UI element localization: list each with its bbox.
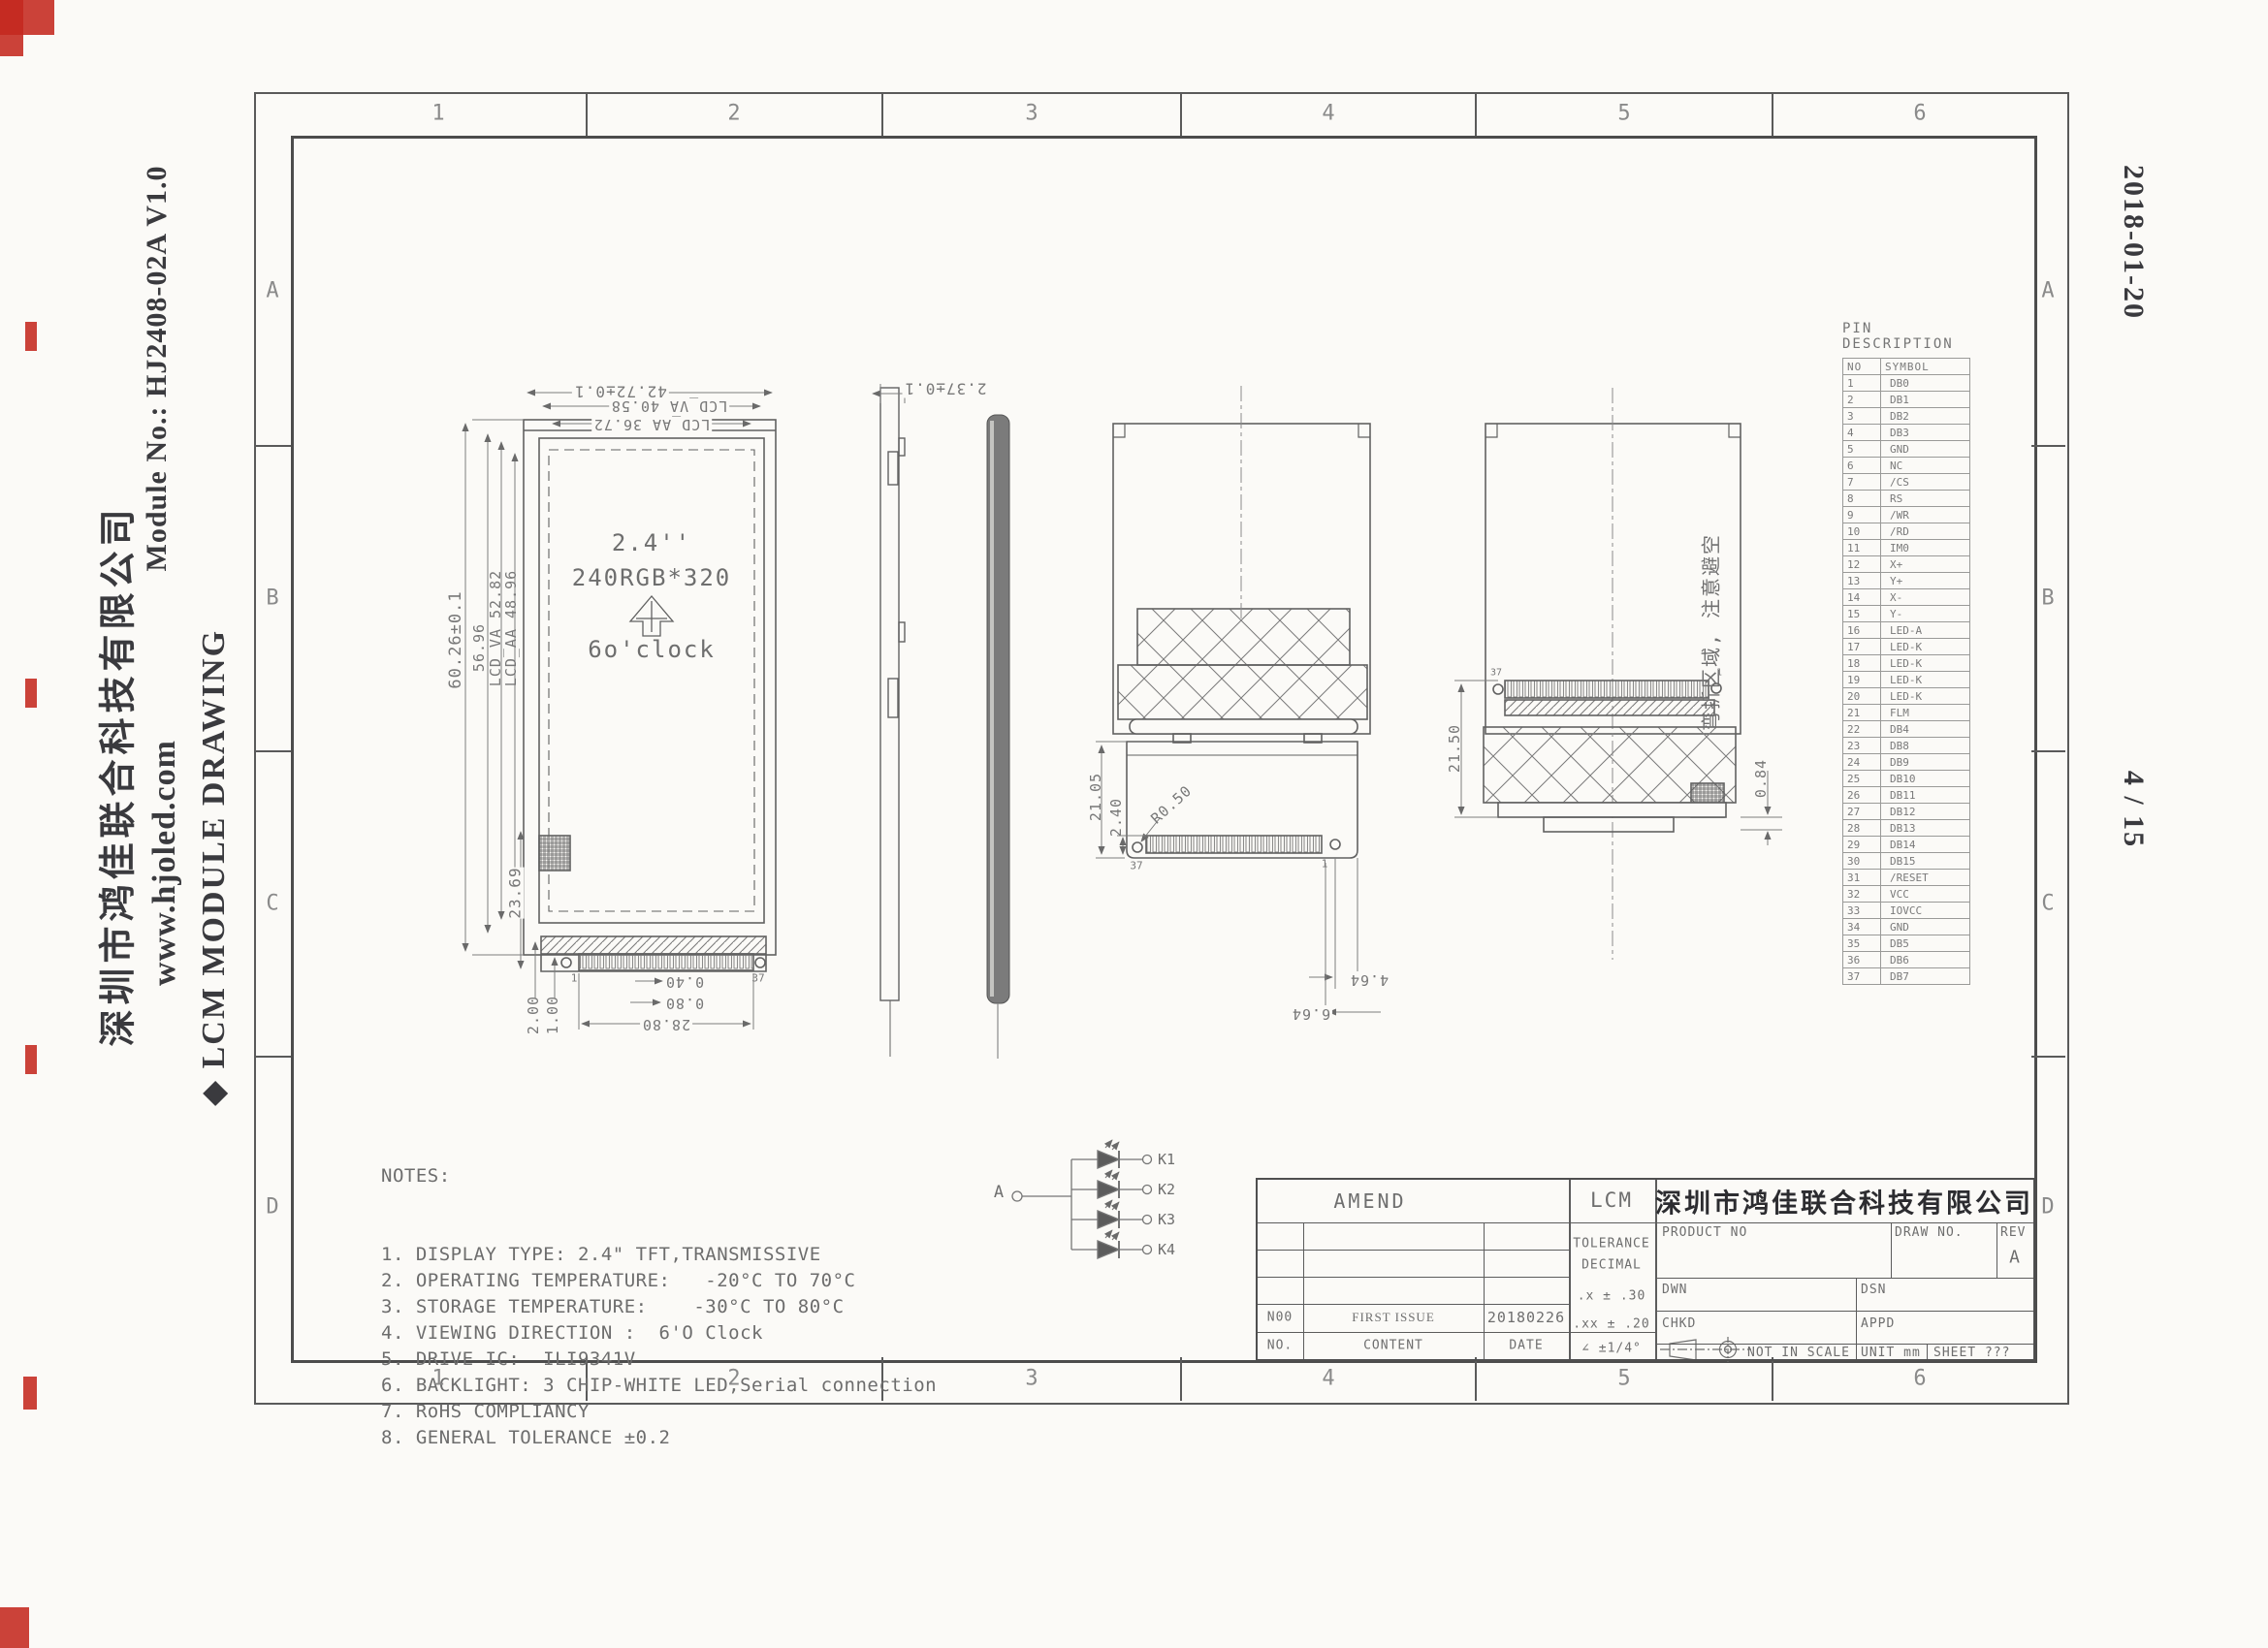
drawing-page: 深圳市鸿佳联合科技有限公司 www.hjoled.com ◆ LCM MODUL… [0,0,2268,1648]
led-cathode-label: K2 [1158,1181,1175,1198]
note-item: 7. RoHS COMPLIANCY [381,1399,1021,1425]
pin-row: 3DB2 [1843,408,1970,425]
grid-ref-label: 1 [431,1367,444,1391]
viewing-direction-arrow-icon [630,596,673,636]
pin-row: 29DB14 [1843,837,1970,853]
notes-block: NOTES: 1. DISPLAY TYPE: 2.4" TFT,TRANSMI… [381,1111,1021,1504]
pin-table-rows: 1DB02DB13DB24DB35GND6NC7/CS8RS9/WR10/RD1… [1843,375,1970,985]
scale-note: NOT IN SCALE [1747,1346,1850,1360]
pin-row: 15Y- [1843,606,1970,622]
pin-row: 32VCC [1843,886,1970,903]
grid-ref-label: 2 [727,102,740,126]
led-circuit-linework [1012,1140,1152,1258]
pin-table-header: NOSYMBOL [1843,359,1970,375]
tolerance-x: .x ± .30 [1578,1289,1646,1304]
notes-list: 1. DISPLAY TYPE: 2.4" TFT,TRANSMISSIVE2.… [381,1242,1021,1451]
dim-2-40: 2.40 [1107,798,1125,837]
dim-0-80: 0.80 [663,995,706,1012]
notes-title: NOTES: [381,1163,1021,1189]
led-cathode-label: K3 [1158,1211,1175,1228]
note-item: 3. STORAGE TEMPERATURE: -30°C TO 80°C [381,1294,1021,1320]
pin-row: 26DB11 [1843,787,1970,804]
dim-height-total: 60.26±0.1 [446,590,465,688]
dim-tail-length: 23.69 [506,867,525,918]
led-cathode-label: K4 [1158,1241,1175,1258]
pin-row: 22DB4 [1843,721,1970,738]
pin-number-label: 1 [1322,858,1328,871]
pin-row: 35DB5 [1843,935,1970,952]
lcm-label: LCM [1590,1188,1633,1212]
draw-no-label: DRAW NO. [1895,1225,1964,1240]
dim-width-va: LCD_VA 40.58 [609,397,729,415]
dim-21-50: 21.50 [1446,724,1463,773]
pin-row: 23DB8 [1843,738,1970,754]
pin-row: 19LED-K [1843,672,1970,688]
chkd-label: CHKD [1662,1316,1696,1331]
pin-row: 17LED-K [1843,639,1970,655]
side-view-filled [987,415,1009,1059]
tolerance-sub: DECIMAL [1581,1258,1642,1273]
grid-ref-label: 3 [1025,102,1038,126]
pin-number-label: 1 [1716,668,1722,679]
note-item: 8. GENERAL TOLERANCE ±0.2 [381,1425,1021,1451]
led-symbol [1071,1140,1152,1168]
pin-row: 18LED-K [1843,655,1970,672]
pin-number-label: 37 [1490,668,1502,679]
folded-view-linework [1454,388,1782,960]
grid-ref-label: C [266,892,278,916]
pin-row: 11IM0 [1843,540,1970,556]
note-item: 4. VIEWING DIRECTION : 6'O Clock [381,1320,1021,1347]
pin-row: 33IOVCC [1843,903,1970,919]
history-content: FIRST ISSUE [1352,1310,1435,1325]
grid-ref-label: B [2041,586,2054,611]
pin-row: 1DB0 [1843,375,1970,392]
dim-height-mid: 56.96 [470,623,488,672]
front-view-linework [465,393,776,1030]
dwn-label: DWN [1662,1283,1687,1297]
dim-1-00: 1.00 [544,996,561,1034]
history-header-date: DATE [1509,1339,1543,1353]
dim-0-40: 0.40 [663,973,706,991]
dim-6-64: 6.64 [1290,1005,1332,1023]
dim-4-64: 4.64 [1348,971,1390,989]
grid-ref-label: D [2041,1195,2054,1220]
grid-ref-label: 5 [1617,1367,1630,1391]
dim-0-84: 0.84 [1752,759,1770,798]
sheet-note: SHEET ??? [1933,1346,2010,1360]
pin-row: 25DB10 [1843,771,1970,787]
pin-row: 12X+ [1843,556,1970,573]
dim-height-aa: LCD_AA 48.96 [502,570,520,686]
note-item: 2. OPERATING TEMPERATURE: -20°C TO 70°C [381,1268,1021,1294]
pin-row: 37DB7 [1843,968,1970,985]
pin-row: 2DB1 [1843,392,1970,408]
grid-ref-label: 4 [1322,1367,1334,1391]
history-header-content: CONTENT [1363,1339,1423,1353]
pin-row: 7/CS [1843,474,1970,491]
pin-number-label: 37 [751,972,764,985]
amend-label: AMEND [1333,1189,1406,1213]
pin-table-title: PIN DESCRIPTION [1842,321,1978,352]
product-no-label: PRODUCT NO [1662,1225,1747,1240]
pin-col-header: NO [1843,359,1881,375]
led-symbol [1071,1200,1152,1228]
history-date: 20180226 [1487,1309,1565,1326]
led-symbol [1071,1230,1152,1258]
tolerance-xx: .xx ± .20 [1573,1317,1649,1332]
tolerance-angle: ∠ ±1/4° [1581,1342,1642,1356]
dim-21-05: 21.05 [1087,773,1104,821]
grid-ref-label: A [266,279,278,303]
unit-note: UNIT mm [1861,1346,1921,1360]
pin-row: 14X- [1843,589,1970,606]
pin-row: 6NC [1843,458,1970,474]
pin-row: 27DB12 [1843,804,1970,820]
led-cathode-label: K1 [1158,1151,1175,1168]
pin-row: 5GND [1843,441,1970,458]
pin-row: 9/WR [1843,507,1970,523]
title-block-company: 深圳市鸿佳联合科技有限公司 [1655,1183,2033,1220]
pin-number-label: 1 [571,972,578,985]
pin-row: 21FLM [1843,705,1970,721]
back-view-linework [1096,386,1385,1020]
note-item: 1. DISPLAY TYPE: 2.4" TFT,TRANSMISSIVE [381,1242,1021,1268]
appd-label: APPD [1861,1316,1895,1331]
grid-ref-label: 1 [431,102,444,126]
pin-row: 24DB9 [1843,754,1970,771]
grid-ref-label: 5 [1617,102,1630,126]
bend-area-note: 弯折区域, 注意避空 [1696,533,1724,731]
pin-row: 8RS [1843,491,1970,507]
pin-row: 28DB13 [1843,820,1970,837]
pin-number-label: 37 [1130,860,1142,872]
grid-ref-label: B [266,586,278,611]
dim-2-00: 2.00 [525,996,542,1034]
tolerance-title: TOLERANCE [1573,1237,1649,1252]
display-size-label: 2.4'' [612,529,691,556]
dim-thickness: 2.37±0.1 [902,380,988,398]
pin-row: 34GND [1843,919,1970,935]
grid-ref-label: A [2041,279,2054,303]
history-header-no: NO. [1267,1339,1293,1353]
dim-28-80: 28.80 [640,1016,692,1033]
rev-value: A [2009,1248,2021,1268]
pin-row: 36DB6 [1843,952,1970,968]
pin-row: 4DB3 [1843,425,1970,441]
pin-col-header: SYMBOL [1881,359,1970,375]
note-item: 6. BACKLIGHT: 3 CHIP-WHITE LED,Serial co… [381,1373,1021,1399]
grid-ref-label: D [266,1195,278,1220]
resolution-label: 240RGB*320 [572,564,732,591]
dsn-label: DSN [1861,1283,1886,1297]
grid-ref-label: 3 [1025,1367,1038,1391]
pin-row: 31/RESET [1843,870,1970,886]
pin-row: 10/RD [1843,523,1970,540]
history-no: N00 [1267,1311,1293,1325]
grid-ref-label: C [2041,892,2054,916]
pin-description-table: PIN DESCRIPTION NOSYMBOL 1DB02DB13DB24DB… [1842,321,1978,985]
pin-row: 30DB15 [1843,853,1970,870]
grid-ref-label: 2 [727,1367,740,1391]
pin-row: 13Y+ [1843,573,1970,589]
pin-row: 16LED-A [1843,622,1970,639]
grid-ref-label: 4 [1322,102,1334,126]
viewing-direction-label: 6o'clock [588,636,716,663]
grid-ref-label: 6 [1913,102,1926,126]
pin-row: 20LED-K [1843,688,1970,705]
grid-ref-label: 6 [1913,1367,1926,1391]
title-block: AMEND N00 FIRST ISSUE 20180226 NO. CONTE… [1256,1178,2035,1361]
rev-label: REV [2000,1225,2026,1240]
led-symbol [1071,1170,1152,1198]
dim-width-aa: LCD_AA 36.72 [591,416,712,433]
note-item: 5. DRIVE IC: ILI9341V [381,1347,1021,1373]
side-view-linework [873,384,912,1057]
